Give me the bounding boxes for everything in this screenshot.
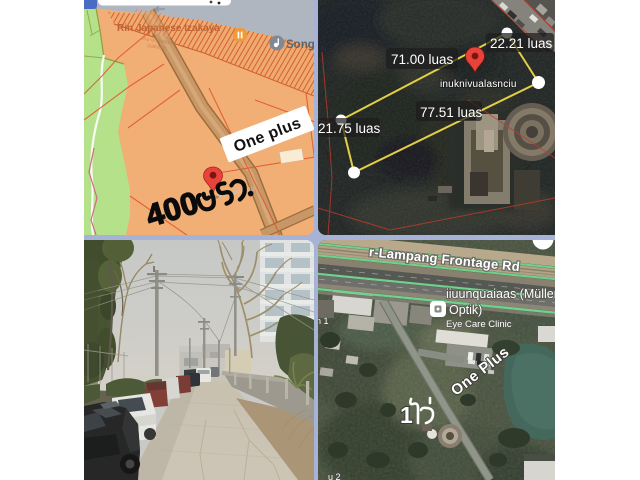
svg-text:Song: Song <box>286 39 314 51</box>
svg-text:n 1: n 1 <box>318 316 329 326</box>
svg-text:iiuunquaiaas (Müller: iiuunquaiaas (Müller <box>446 287 555 301</box>
svg-text:Optik): Optik) <box>449 303 482 317</box>
svg-text:u 2: u 2 <box>328 472 341 480</box>
svg-text:inuknivualasnciu: inuknivualasnciu <box>440 79 517 90</box>
svg-text:Rin Japanese Izakaya: Rin Japanese Izakaya <box>117 23 220 34</box>
svg-text:77.51 luas: 77.51 luas <box>420 105 483 120</box>
svg-text:1: 1 <box>400 402 413 428</box>
svg-text:Eye Care Clinic: Eye Care Clinic <box>446 319 512 330</box>
svg-text:71.00 luas: 71.00 luas <box>391 52 454 67</box>
svg-text:22.21 luas: 22.21 luas <box>490 36 553 51</box>
svg-text:21.75 luas: 21.75 luas <box>318 121 381 136</box>
